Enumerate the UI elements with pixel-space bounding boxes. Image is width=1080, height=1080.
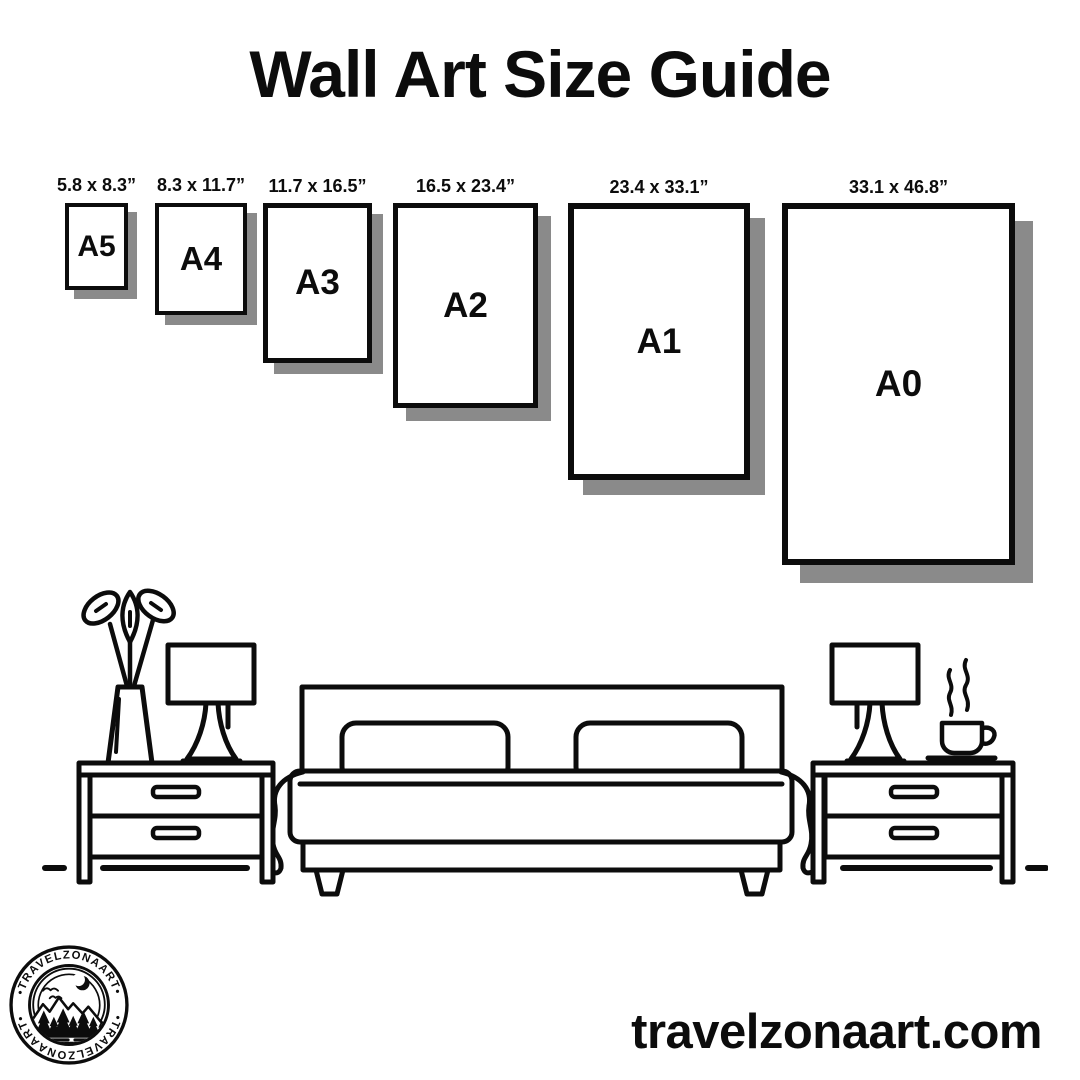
paper-dims-a5: 5.8 x 8.3” [57, 175, 136, 196]
bed-icon [272, 687, 812, 894]
flower-vase-icon [78, 585, 179, 763]
paper-letter-a5: A5 [77, 230, 115, 264]
paper-dims-a3: 11.7 x 16.5” [268, 176, 366, 197]
page-title: Wall Art Size Guide [0, 36, 1080, 112]
paper-size-a2: 16.5 x 23.4” A2 [393, 203, 538, 408]
paper-size-a3: 11.7 x 16.5” A3 [263, 203, 372, 363]
bedroom-illustration [40, 578, 1048, 908]
paper-letter-a1: A1 [637, 322, 682, 362]
paper-size-a5: 5.8 x 8.3” A5 [65, 203, 128, 290]
paper-size-a1: 23.4 x 33.1” A1 [568, 203, 750, 480]
paper-size-a4: 8.3 x 11.7” A4 [155, 203, 247, 315]
paper-dims-a0: 33.1 x 46.8” [849, 177, 948, 198]
travelzonaart-logo: •TRAVELZONAART• •TRAVELZONAART• [6, 942, 132, 1068]
paper-letter-a4: A4 [180, 240, 222, 278]
paper-letter-a0: A0 [875, 363, 922, 405]
paper-dims-a4: 8.3 x 11.7” [157, 175, 245, 196]
paper-letter-a2: A2 [443, 286, 488, 326]
nightstand-icon [813, 763, 1013, 882]
paper-dims-a2: 16.5 x 23.4” [416, 176, 515, 197]
paper-letter-a3: A3 [295, 263, 340, 303]
paper-size-a0: 33.1 x 46.8” A0 [782, 203, 1015, 565]
nightstand-icon [79, 763, 273, 882]
website-url: travelzonaart.com [631, 1004, 1042, 1060]
paper-dims-a1: 23.4 x 33.1” [609, 177, 708, 198]
table-lamp-icon [832, 645, 918, 761]
coffee-cup-icon [928, 660, 995, 758]
table-lamp-icon [168, 645, 254, 761]
